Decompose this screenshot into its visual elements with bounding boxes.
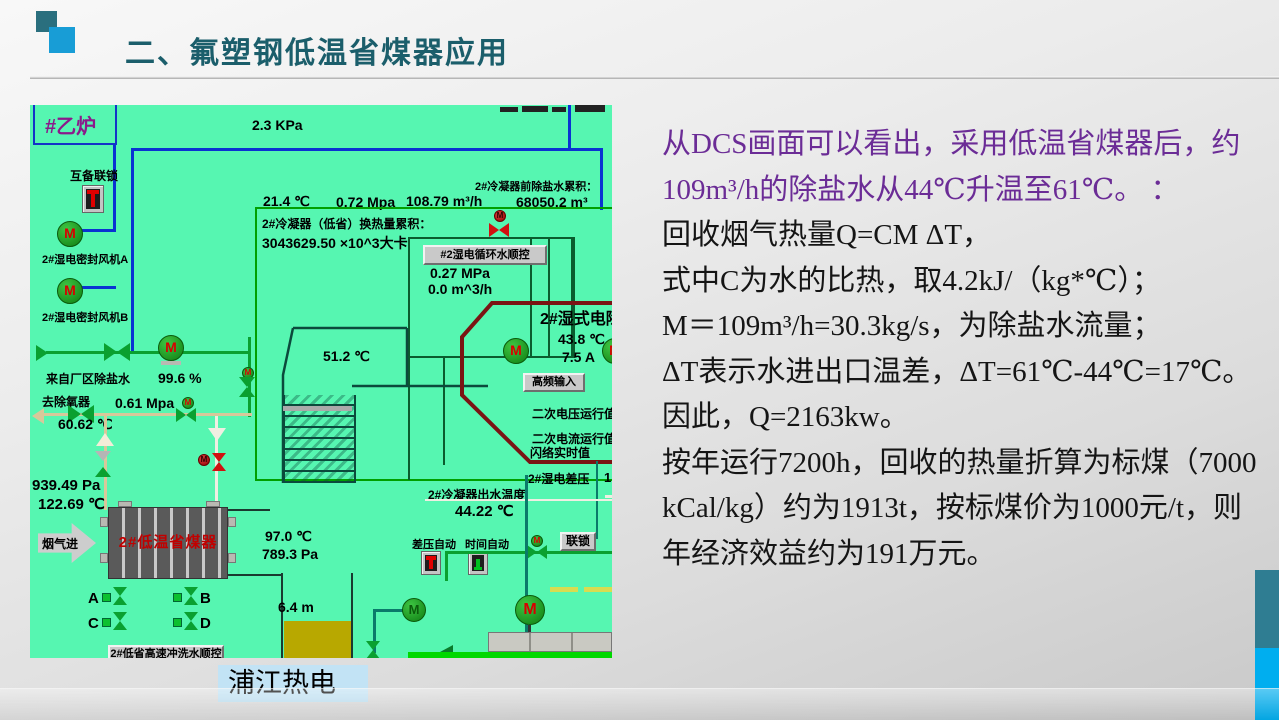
tank-water-fill xyxy=(284,621,351,658)
valve-a-icon[interactable] xyxy=(113,587,127,605)
valve-c-status-icon xyxy=(102,618,111,627)
secondary-voltage-label: 二次电压运行值 xyxy=(532,405,612,422)
clipped-text-fragment xyxy=(522,106,548,112)
valve-a-status-icon xyxy=(102,593,111,602)
interlock-switch-icon[interactable] xyxy=(82,185,104,213)
esp-motor-icon[interactable] xyxy=(602,338,612,364)
analysis-line: 因此，Q=2163kw。 xyxy=(662,395,1262,441)
esp-dp-value: 1 xyxy=(604,470,611,485)
valve-motor-icon[interactable] xyxy=(198,454,210,466)
interlock-button[interactable]: 联锁 xyxy=(560,532,596,551)
yellow-dash xyxy=(584,587,612,592)
clipped-text-fragment xyxy=(575,105,605,112)
flush-seq-button[interactable]: 2#低省高速冲洗水顺控 xyxy=(108,645,224,658)
valve-d-status-icon xyxy=(173,618,182,627)
page-title: 二、氟塑钢低温省煤器应用 xyxy=(125,28,509,72)
analysis-line: M＝109m³/h=30.3kg/s，为除盐水流量； xyxy=(662,304,1262,350)
valve-motor-icon[interactable] xyxy=(494,210,506,222)
mutual-interlock-label: 互备联锁 xyxy=(70,167,118,184)
esp-motor-icon[interactable] xyxy=(503,338,529,364)
flue-pressure-value: 939.49 Pa xyxy=(32,477,100,494)
valve-pedestal xyxy=(161,361,181,365)
from-plant-label: 来自厂区除盐水 xyxy=(46,370,130,387)
economizer-tab xyxy=(118,501,132,507)
pipe-blue xyxy=(113,145,116,231)
heat-total-label: 2#冷凝器（低省）换热量累积： xyxy=(262,215,431,232)
eco-outlet-pressure-value: 789.3 Pa xyxy=(262,546,318,562)
economizer-tab xyxy=(100,517,108,527)
pipe-teal xyxy=(373,609,405,612)
flashover-label: 闪络实时值 xyxy=(530,444,590,461)
pipe-blue xyxy=(131,148,134,353)
circ-pressure-value: 0.27 MPa xyxy=(430,265,490,281)
tank-level-value: 6.4 m xyxy=(278,599,314,615)
heat-total-value: 3043629.50 ×10^3大卡 xyxy=(262,233,408,253)
high-freq-input-button[interactable]: 高频输入 xyxy=(523,373,585,392)
title-divider xyxy=(30,76,1279,79)
flow-arrow-left-icon xyxy=(32,408,44,424)
economizer-label: 2#低温省煤器 xyxy=(119,534,218,551)
bank-gray-band xyxy=(283,406,352,411)
pipe-white xyxy=(425,499,612,501)
analysis-line: ΔT表示水进出口温差，ΔT=61℃-44℃=17℃。 xyxy=(662,350,1262,396)
economizer-tab xyxy=(100,553,108,563)
time-auto-label: 时间自动 xyxy=(465,536,509,552)
valve-c-icon[interactable] xyxy=(113,612,127,630)
analysis-line: 回收烟气热量Q=CM ΔT， xyxy=(662,213,1262,259)
pipe-blue xyxy=(600,148,603,210)
analysis-line: 式中C为水的比热，取4.2kJ/（kg*℃）； xyxy=(662,259,1262,305)
pipe-green xyxy=(46,351,250,354)
time-auto-switch-icon[interactable] xyxy=(468,551,488,575)
valve-b-label: B xyxy=(200,590,211,607)
esp-dp-label: 2#湿电差压 xyxy=(528,470,589,487)
analysis-line: 按年运行7200h，回收的热量折算为标煤（7000 xyxy=(662,441,1262,487)
platform xyxy=(488,632,612,652)
economizer-tab xyxy=(228,553,236,563)
valve-c-label: C xyxy=(88,615,99,632)
fan-a-label: 2#湿电密封风机A xyxy=(42,251,128,267)
red-valve-icon[interactable] xyxy=(212,453,226,471)
duct-pressure-value: 2.3 KPa xyxy=(252,117,303,133)
tube-line xyxy=(408,358,410,480)
outlet-temp-value: 44.22 ℃ xyxy=(455,502,514,520)
green-valve-icon[interactable] xyxy=(104,343,130,361)
fan-a-motor-icon[interactable] xyxy=(57,221,83,247)
two-tone-valve-icon[interactable] xyxy=(95,451,115,477)
pipe-green xyxy=(445,551,448,581)
green-valve-icon[interactable] xyxy=(366,641,380,658)
duct-temp-value: 51.2 ℃ xyxy=(323,348,370,365)
pre-demin-total-label: 2#冷凝器前除盐水累积： xyxy=(475,178,597,194)
pipe-blue xyxy=(82,229,116,232)
dp-auto-label: 差压自动 xyxy=(412,536,456,552)
fan-b-label: 2#湿电密封风机B xyxy=(42,309,128,325)
analysis-line: 从DCS画面可以看出，采用低温省煤器后，约 xyxy=(662,122,1262,168)
valve-b-icon[interactable] xyxy=(184,587,198,605)
clipped-text-fragment xyxy=(552,107,566,112)
pump-motor-icon[interactable] xyxy=(515,595,545,625)
circ-flow-value: 0.0 m^3/h xyxy=(428,281,492,297)
footer-band xyxy=(0,688,1279,720)
clipped-text-fragment xyxy=(500,107,518,112)
tube-line xyxy=(443,358,445,465)
green-valve-icon[interactable] xyxy=(527,545,547,559)
economizer-block: 2#低温省煤器 xyxy=(108,507,228,579)
fan-b-motor-icon[interactable] xyxy=(57,278,83,304)
yellow-dash xyxy=(550,587,578,592)
green-valve-icon[interactable] xyxy=(239,377,255,397)
pump-motor-icon[interactable] xyxy=(402,598,426,622)
ground-strip xyxy=(408,652,612,658)
flue-gas-label: 烟气进 xyxy=(42,535,78,552)
analysis-line: 109m³/h的除盐水从44℃升温至61℃。 ： xyxy=(662,168,1262,214)
tube-line xyxy=(548,237,550,358)
pipe-white xyxy=(605,495,612,498)
dp-auto-switch-icon[interactable] xyxy=(421,551,441,575)
pipe-blue xyxy=(131,148,603,151)
esp-temp-value: 43.8 ℃ xyxy=(558,331,605,348)
edge-bar-teal xyxy=(1255,570,1279,648)
decor-square-blue xyxy=(49,27,75,53)
analysis-line: 年经济效益约为191万元。 xyxy=(662,532,1262,578)
economizer-tab xyxy=(228,517,236,527)
economizer-tab xyxy=(206,501,220,507)
valve-a-label: A xyxy=(88,590,99,607)
valve-b-status-icon xyxy=(173,593,182,602)
flow-arrow-up-icon xyxy=(96,433,114,446)
green-valve-icon[interactable] xyxy=(176,408,196,422)
boiler-tag: #乙炉 xyxy=(45,110,96,139)
esp-title: 2#湿式电除尘 xyxy=(540,305,612,329)
boiler-tag-box: #乙炉 xyxy=(33,105,117,145)
valve-opening-value: 99.6 % xyxy=(158,370,202,386)
esp-current-value: 7.5 A xyxy=(562,349,595,365)
slide: 二、氟塑钢低温省煤器应用 从DCS画面可以看出，采用低温省煤器后，约 109m³… xyxy=(0,0,1279,720)
flow-arrow-down-icon xyxy=(208,428,226,441)
circulating-water-seq-button[interactable]: #2湿电循环水顺控 xyxy=(423,245,547,265)
analysis-line: kCal/kg）约为1913t，按标煤价为1000元/t，则 xyxy=(662,486,1262,532)
eco-outlet-temp-value: 97.0 ℃ xyxy=(265,528,312,545)
red-valve-icon[interactable] xyxy=(489,223,509,237)
pipe-blue xyxy=(568,105,571,150)
pipe-blue xyxy=(82,286,116,289)
valve-d-icon[interactable] xyxy=(184,612,198,630)
flue-temp-value: 122.69 ℃ xyxy=(38,495,105,513)
deaerator-pressure-value: 0.61 Mpa xyxy=(115,395,174,411)
valve-d-label: D xyxy=(200,615,211,632)
dcs-screenshot: #乙炉 2.3 KPa 互备联锁 2#湿电密封风机A 2#湿电密封风机B 21.… xyxy=(30,105,612,658)
control-valve-motor-icon[interactable] xyxy=(158,335,184,361)
analysis-text: 从DCS画面可以看出，采用低温省煤器后，约 109m³/h的除盐水从44℃升温至… xyxy=(662,122,1262,577)
